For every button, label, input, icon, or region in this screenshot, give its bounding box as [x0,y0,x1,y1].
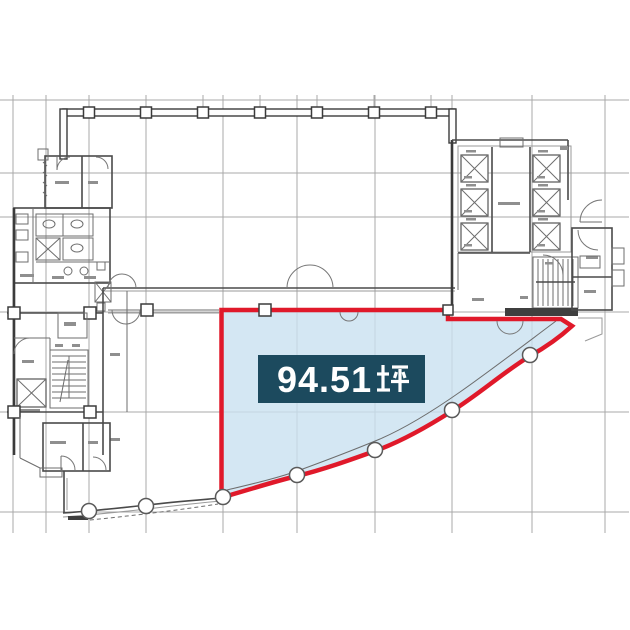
elevator-shafts-left [461,150,488,250]
area-label-value: 94.51 [277,359,372,400]
area-label: 94.51 [258,355,425,403]
stair-base-wall [505,308,578,316]
highlight-fill [222,310,573,498]
toilet-core [14,208,110,283]
top-perimeter-wall [60,107,456,159]
floorplan-image: 94.51 [0,0,630,630]
elevator-hall [452,138,624,341]
upper-left-rooms [38,149,112,208]
floorplan-svg: 94.51 [0,0,630,630]
right-side-rooms [572,200,624,341]
elevator-shafts-right [533,150,560,250]
